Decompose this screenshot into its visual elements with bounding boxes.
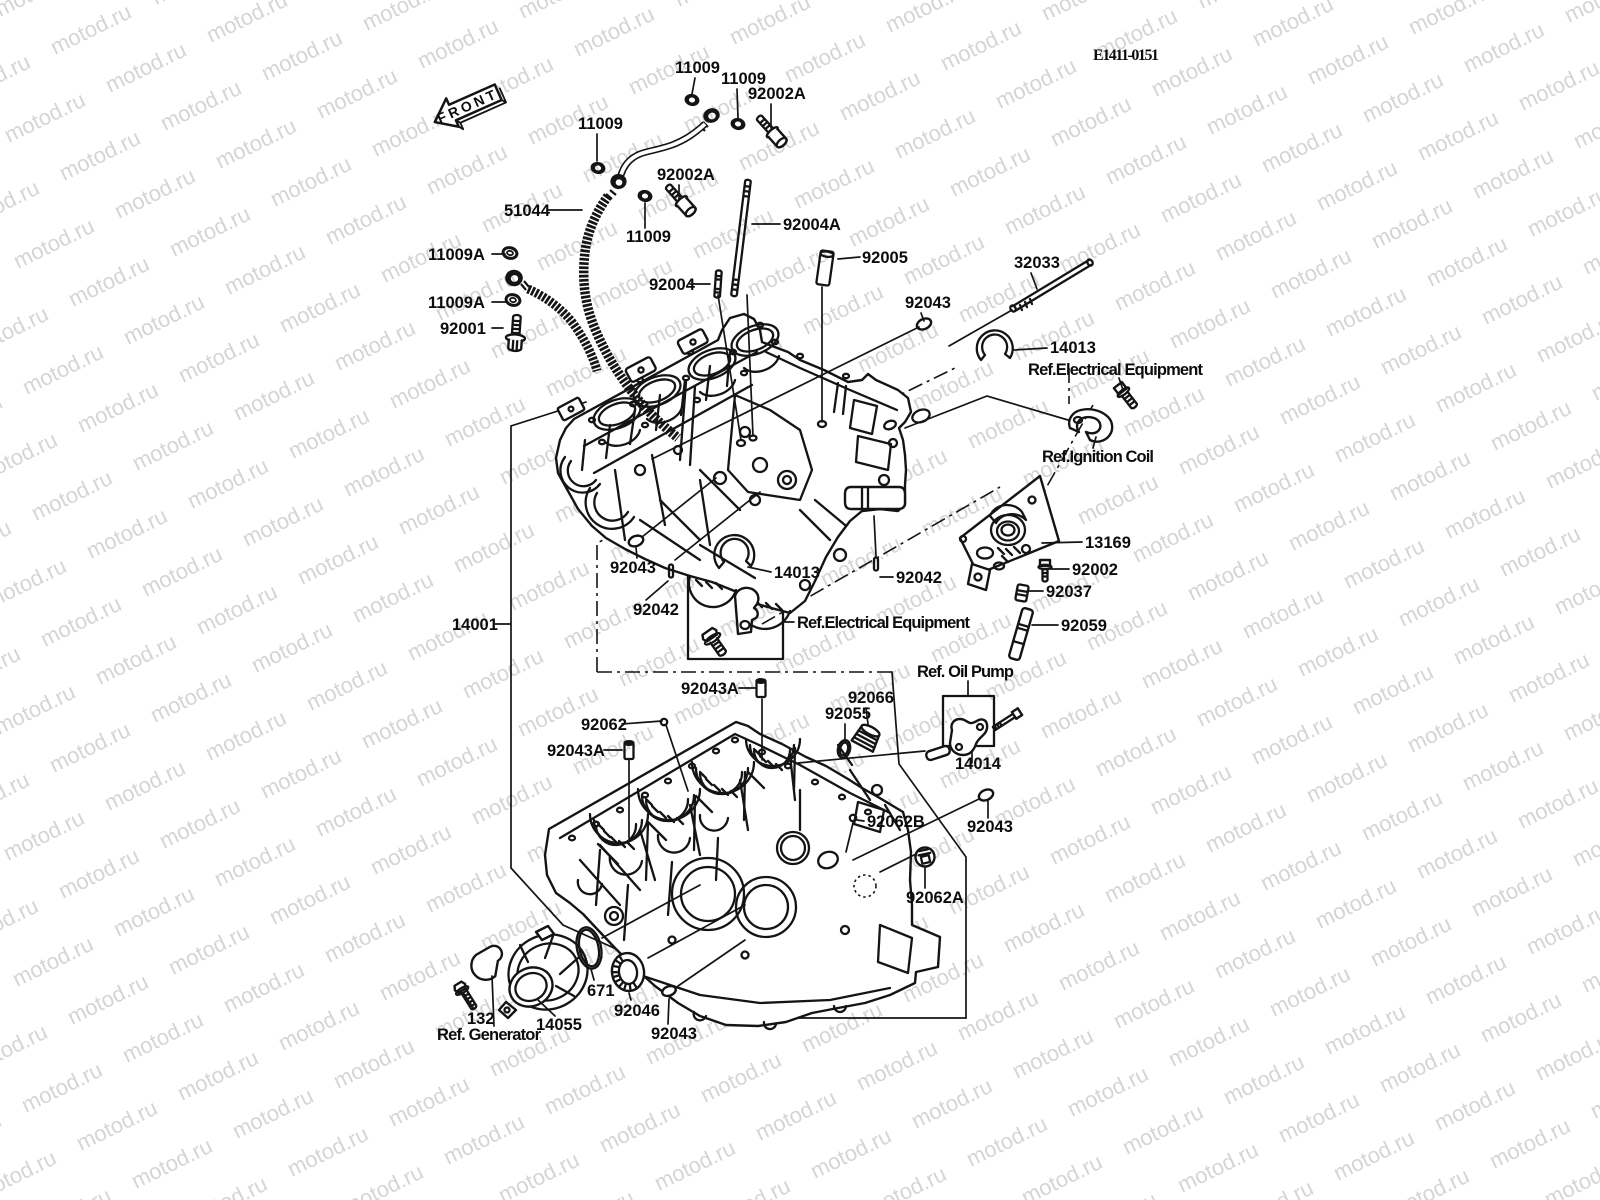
svg-text:92043A: 92043A bbox=[681, 680, 739, 698]
svg-text:11009A: 11009A bbox=[428, 294, 485, 312]
svg-text:14014: 14014 bbox=[955, 755, 1002, 773]
svg-text:13169: 13169 bbox=[1085, 534, 1131, 552]
svg-text:92043A: 92043A bbox=[547, 742, 605, 760]
svg-text:92062: 92062 bbox=[581, 716, 627, 734]
svg-text:92004A: 92004A bbox=[783, 216, 841, 234]
svg-text:92002A: 92002A bbox=[657, 166, 715, 184]
svg-text:11009: 11009 bbox=[675, 59, 720, 77]
svg-text:92059: 92059 bbox=[1061, 617, 1107, 635]
svg-text:92002A: 92002A bbox=[748, 85, 806, 103]
svg-text:92004: 92004 bbox=[649, 276, 696, 294]
svg-text:92062A: 92062A bbox=[906, 889, 964, 907]
svg-text:92042: 92042 bbox=[633, 601, 679, 619]
svg-text:Ref.Ignition Coil: Ref.Ignition Coil bbox=[1042, 448, 1154, 466]
svg-text:92037: 92037 bbox=[1046, 583, 1092, 601]
svg-text:92043: 92043 bbox=[967, 818, 1013, 836]
svg-text:92062B: 92062B bbox=[867, 813, 925, 831]
svg-text:Ref. Generator: Ref. Generator bbox=[437, 1026, 542, 1044]
svg-text:92043: 92043 bbox=[610, 559, 656, 577]
svg-text:92043: 92043 bbox=[651, 1025, 697, 1043]
svg-text:11009A: 11009A bbox=[428, 246, 485, 264]
svg-text:14013: 14013 bbox=[1050, 339, 1096, 357]
svg-text:671: 671 bbox=[587, 982, 615, 1000]
svg-text:92001: 92001 bbox=[440, 320, 486, 338]
svg-text:92002: 92002 bbox=[1072, 561, 1118, 579]
svg-text:32033: 32033 bbox=[1014, 254, 1060, 272]
svg-text:Ref.Electrical Equipment: Ref.Electrical Equipment bbox=[797, 614, 971, 632]
svg-text:14001: 14001 bbox=[452, 616, 498, 634]
svg-text:11009: 11009 bbox=[626, 228, 671, 246]
svg-text:Ref. Oil Pump: Ref. Oil Pump bbox=[917, 663, 1014, 681]
svg-text:92046: 92046 bbox=[614, 1002, 660, 1020]
svg-text:11009: 11009 bbox=[578, 115, 623, 133]
svg-text:92055: 92055 bbox=[825, 705, 871, 723]
svg-text:51044: 51044 bbox=[504, 202, 551, 220]
svg-text:14013: 14013 bbox=[774, 564, 820, 582]
svg-text:92005: 92005 bbox=[862, 249, 908, 267]
svg-text:E1411-0151: E1411-0151 bbox=[1093, 47, 1159, 64]
svg-text:14055: 14055 bbox=[536, 1016, 582, 1034]
svg-text:Ref.Electrical Equipment: Ref.Electrical Equipment bbox=[1028, 361, 1204, 379]
svg-text:92042: 92042 bbox=[896, 569, 942, 587]
svg-text:92043: 92043 bbox=[905, 294, 951, 312]
